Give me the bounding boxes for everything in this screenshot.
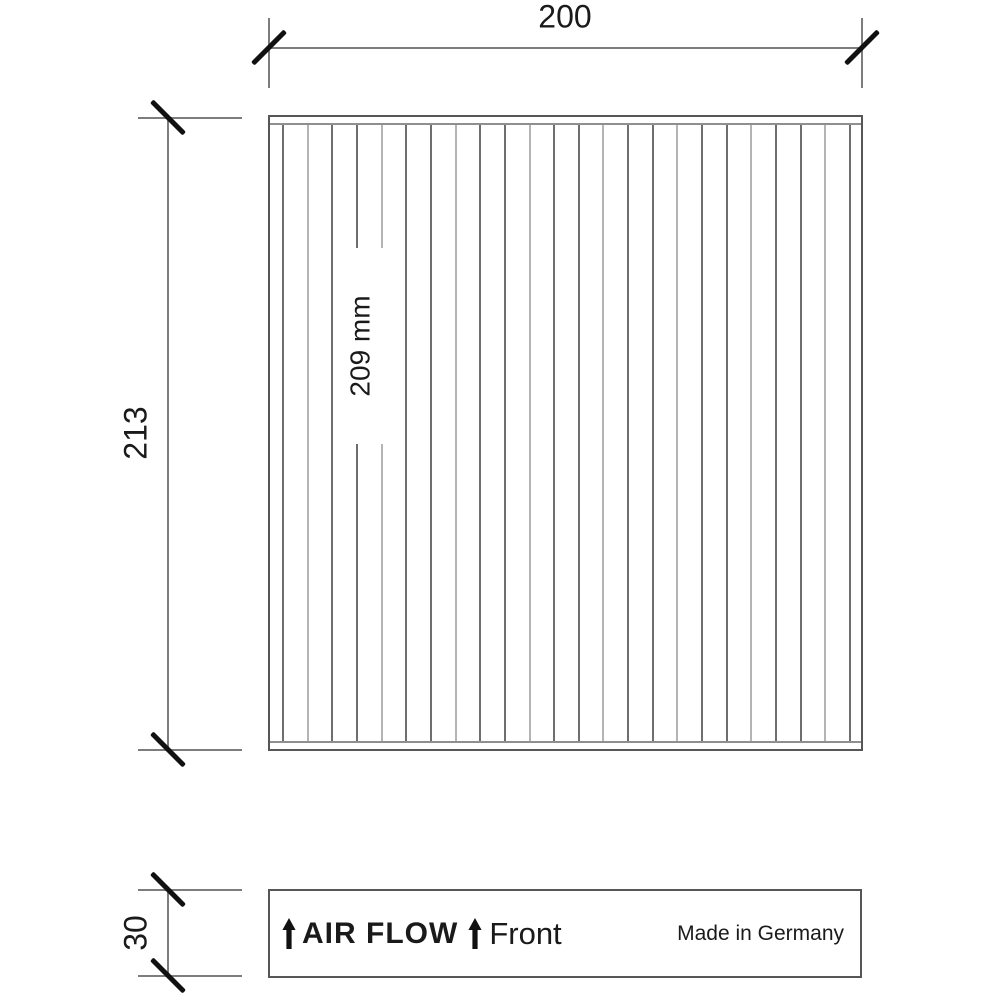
- height-dimension-label: 213: [118, 406, 155, 459]
- air-flow-label: AIR FLOW: [302, 917, 458, 951]
- pleat-depth-label: 209 mm: [345, 295, 377, 396]
- pleat-line: [800, 125, 802, 741]
- pleat-line: [627, 125, 629, 741]
- air-flow-arrow-icon: [282, 918, 296, 949]
- pleat-line: [578, 125, 580, 741]
- height-extension-line-top: [138, 117, 242, 119]
- frame-height-dimension-line: [167, 890, 169, 977]
- front-arrow-icon: [468, 918, 482, 949]
- pleat-line: [652, 125, 654, 741]
- pleat-line: [430, 125, 432, 741]
- pleat-line: [701, 125, 703, 741]
- width-extension-line-left: [268, 18, 270, 88]
- pleat-line: [824, 125, 826, 741]
- pleat-line: [750, 125, 752, 741]
- pleat-line: [331, 125, 333, 741]
- frame-height-label: 30: [118, 915, 155, 951]
- made-in-germany-label: Made in Germany: [677, 922, 844, 946]
- width-dimension-line: [269, 47, 863, 49]
- pleat-line: [553, 125, 555, 741]
- filter-frame-bottom-edge: [270, 741, 861, 743]
- pleat-line: [602, 125, 604, 741]
- pleat-line: [529, 125, 531, 741]
- pleat-line: [479, 125, 481, 741]
- front-label: Front: [489, 916, 561, 952]
- pleat-line: [455, 125, 457, 741]
- frame-height-extension-line-bottom: [138, 975, 242, 977]
- pleat-depth-label-box: 209 mm: [334, 248, 388, 444]
- technical-drawing: 200 213 209 mm 30 AIR FLOW: [0, 0, 1000, 1000]
- frame-height-extension-line-top: [138, 889, 242, 891]
- pleat-line: [726, 125, 728, 741]
- width-dimension-label: 200: [538, 0, 591, 36]
- bottom-panel: AIR FLOW Front Made in Germany: [268, 889, 862, 978]
- bottom-panel-content: AIR FLOW Front: [282, 891, 562, 976]
- pleat-line: [282, 125, 284, 741]
- width-extension-line-right: [861, 18, 863, 88]
- pleat-line: [405, 125, 407, 741]
- pleat-line: [676, 125, 678, 741]
- pleat-line: [849, 125, 851, 741]
- height-extension-line-bottom: [138, 749, 242, 751]
- height-dimension-line: [167, 118, 169, 750]
- pleat-line: [307, 125, 309, 741]
- pleat-line: [504, 125, 506, 741]
- pleat-line: [775, 125, 777, 741]
